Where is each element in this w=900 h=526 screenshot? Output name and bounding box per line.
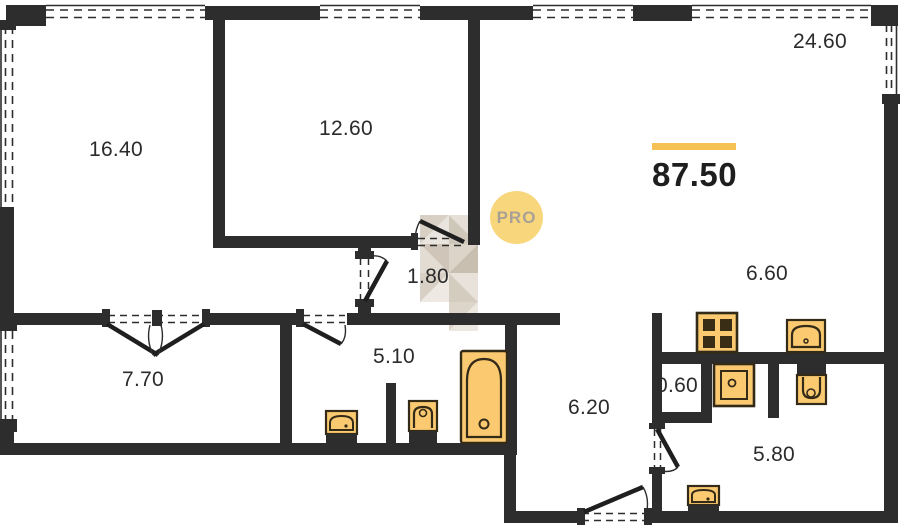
toilet-icon: [797, 360, 826, 404]
accent-bar: [652, 143, 736, 150]
room-label-5-10: 5.10: [373, 345, 415, 369]
total-area-block: 87.50: [652, 143, 738, 194]
pro-badge: PRO: [490, 191, 543, 244]
sink-icon: [326, 411, 357, 443]
room-label-12-60: 12.60: [319, 117, 373, 141]
room-label-6-20: 6.20: [568, 396, 610, 420]
pro-badge-label: PRO: [497, 208, 537, 228]
room-label-1-80: 1.80: [407, 265, 449, 289]
room-label-0-60: 0.60: [656, 374, 698, 398]
toilet-icon: [409, 401, 437, 444]
kitchen-sink-icon: [787, 320, 825, 352]
washing-machine-icon: [714, 364, 754, 406]
room-label-16-40: 16.40: [89, 138, 143, 162]
door-openings: [108, 239, 661, 521]
bathtub-icon: [461, 351, 507, 443]
floor-plan: 16.40 12.60 24.60 1.80 7.70 5.10 6.20 0.…: [0, 0, 900, 526]
room-label-5-80: 5.80: [753, 443, 795, 467]
total-area-value: 87.50: [652, 156, 738, 194]
room-label-6-60: 6.60: [746, 262, 788, 286]
room-label-7-70: 7.70: [122, 368, 164, 392]
stove-icon: [697, 313, 737, 352]
room-label-24-60: 24.60: [793, 30, 847, 54]
sink-icon: [688, 486, 719, 513]
